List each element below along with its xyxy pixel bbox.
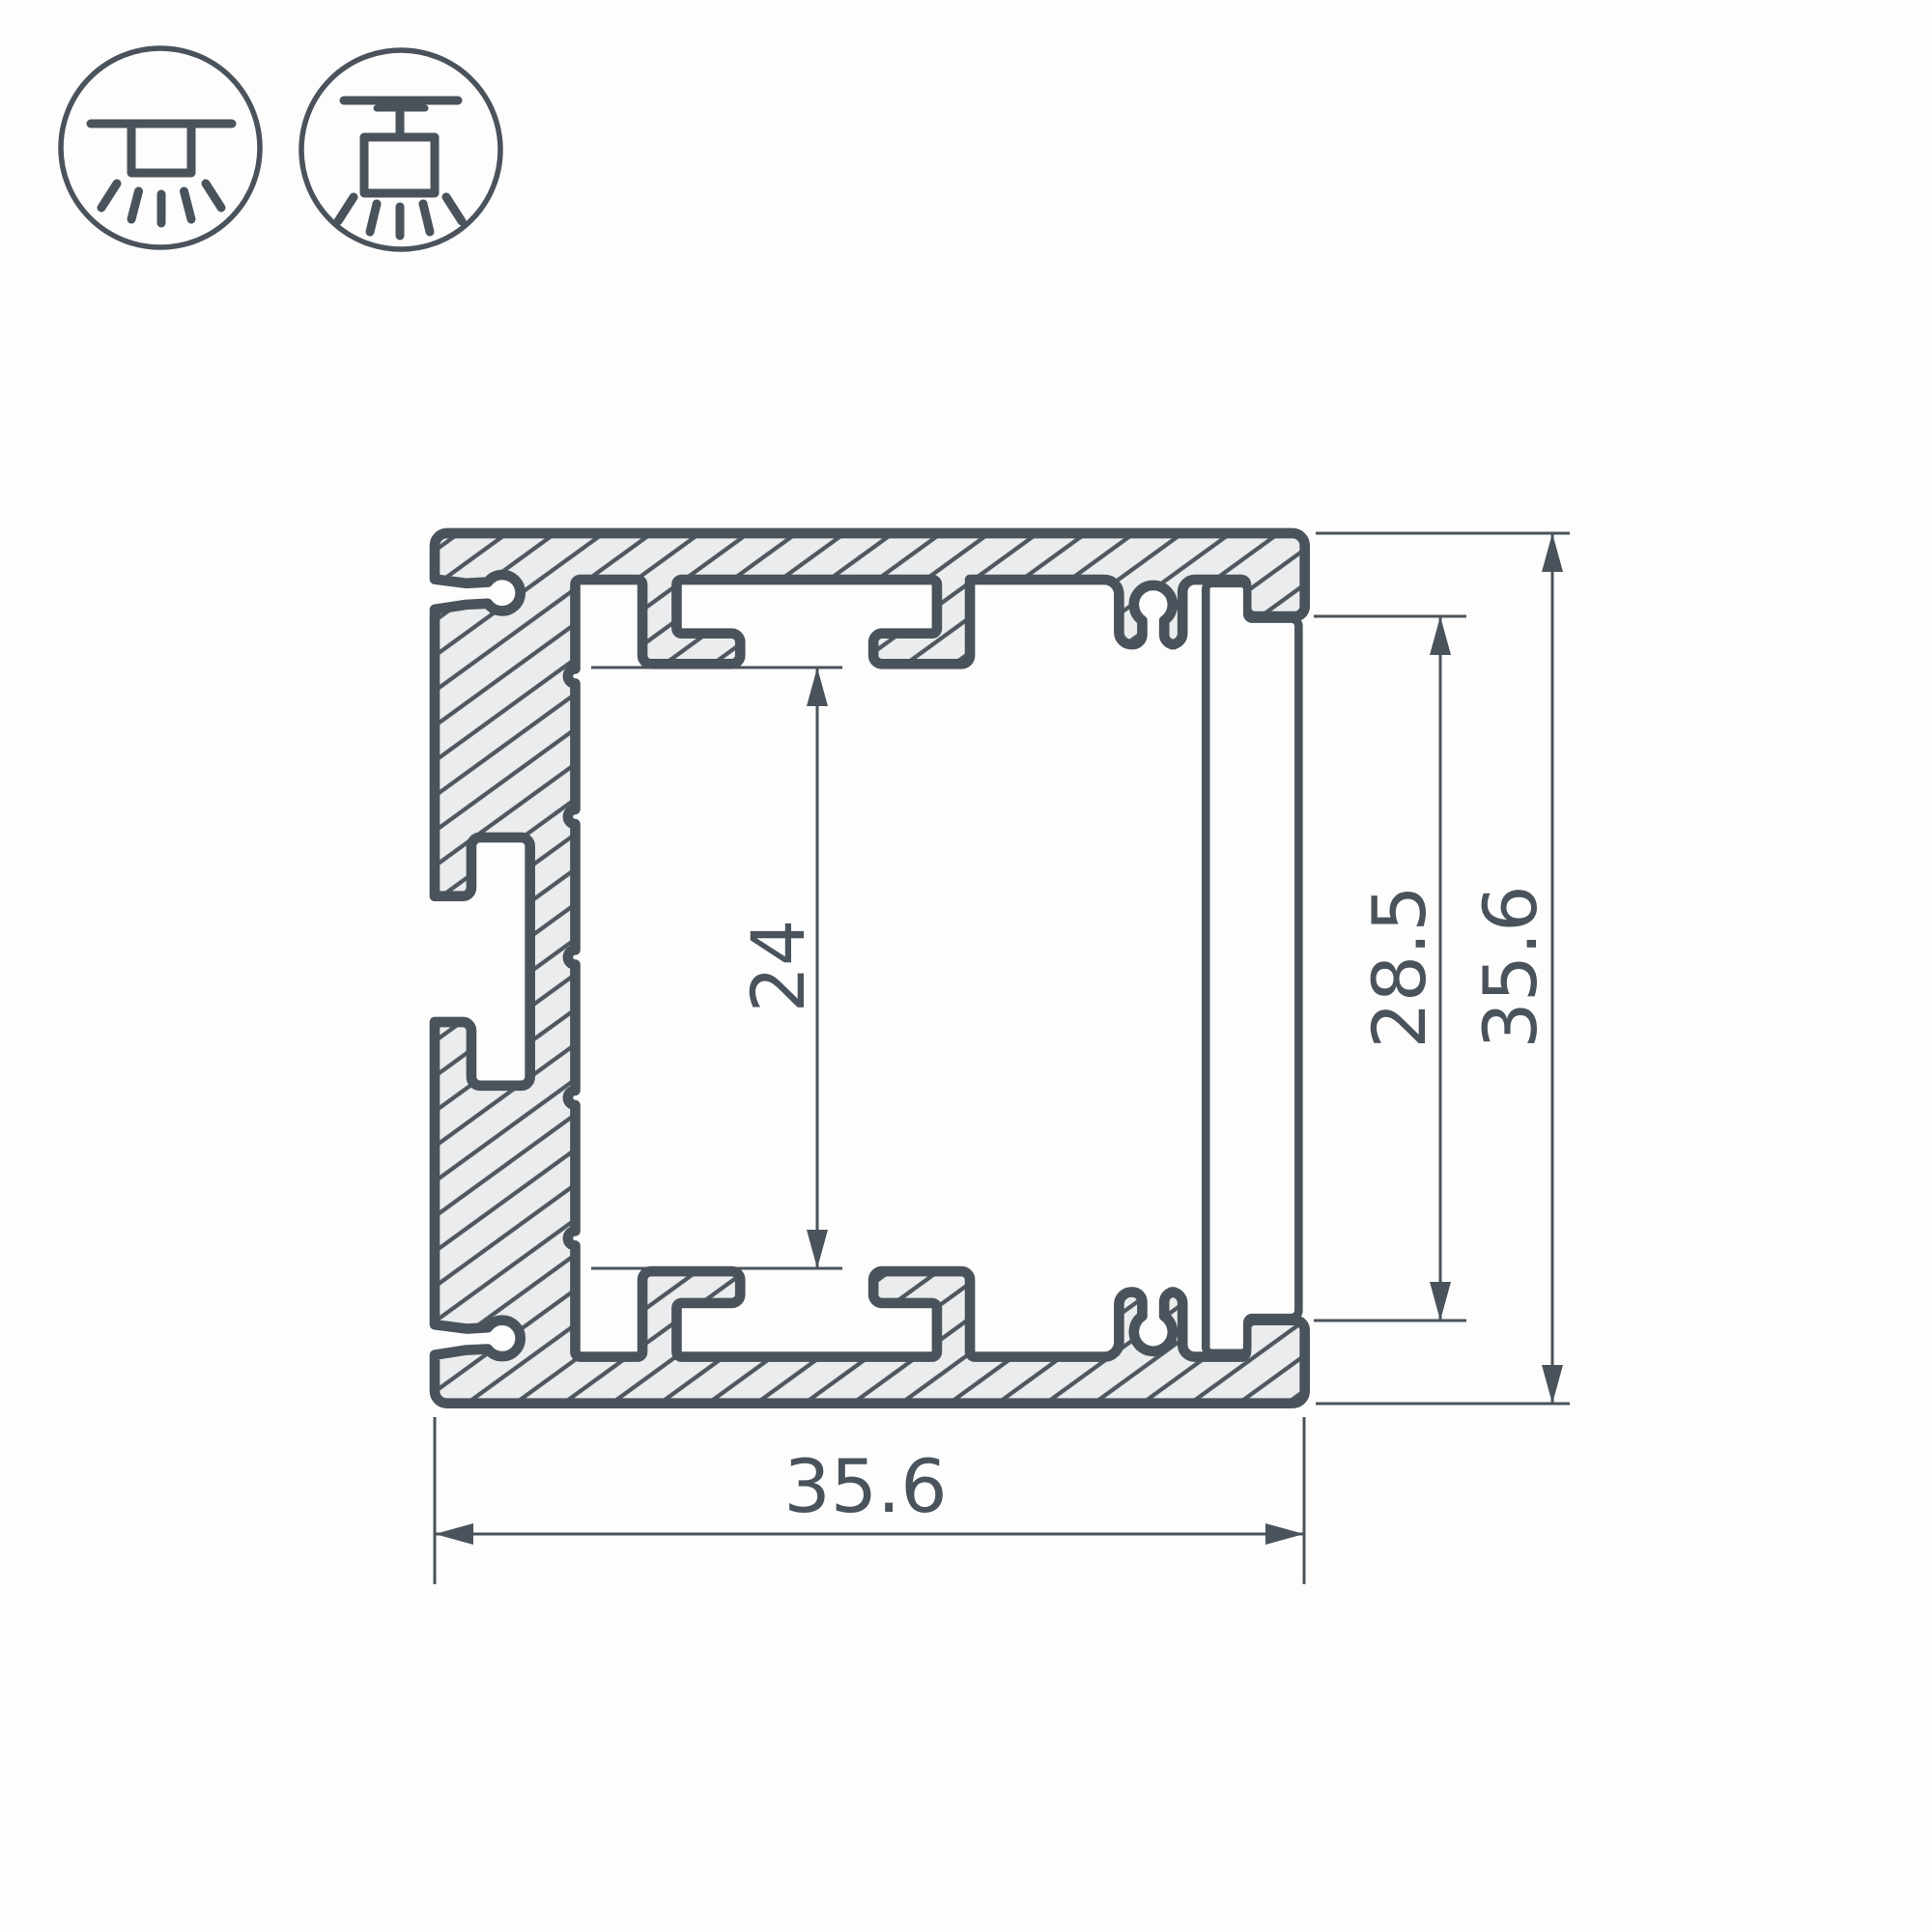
dimension-value: 35.6 <box>1467 885 1553 1048</box>
arrowhead-up <box>1430 616 1451 655</box>
light-ray <box>185 191 192 219</box>
pendant-mount-icon <box>301 50 500 249</box>
arrowhead-left <box>435 1523 473 1545</box>
light-ray <box>101 184 117 208</box>
dimension-overall-height: 35.6 <box>1316 533 1570 1404</box>
dimension-value: 28.5 <box>1356 885 1442 1048</box>
arrowhead-up <box>807 668 828 706</box>
light-ray <box>206 184 221 208</box>
technical-drawing: 24 28.5 35.6 35.6 <box>0 0 1932 1932</box>
profile-body-hatch <box>435 533 1305 1404</box>
fixture-box <box>364 137 435 193</box>
light-ray <box>423 204 430 232</box>
light-ray <box>446 197 462 221</box>
drawing-canvas: 24 28.5 35.6 35.6 <box>0 0 1932 1932</box>
light-ray <box>131 191 139 219</box>
dimension-value: 35.6 <box>783 1443 947 1529</box>
arrowhead-down <box>807 1230 828 1268</box>
dimension-inner-height: 24 <box>591 668 842 1268</box>
dimension-value: 24 <box>735 920 821 1013</box>
surface-mount-icon <box>61 48 260 247</box>
light-ray <box>338 197 354 221</box>
profile-cross-section <box>435 533 1305 1404</box>
light-ray <box>370 204 377 232</box>
arrowhead-down <box>1430 1282 1451 1321</box>
dimension-overall-width: 35.6 <box>435 1417 1304 1584</box>
arrowhead-up <box>1542 533 1563 572</box>
arrowhead-right <box>1265 1523 1304 1545</box>
dimension-opening-height: 28.5 <box>1314 616 1466 1321</box>
fixture-box <box>131 124 191 173</box>
arrowhead-down <box>1542 1365 1563 1404</box>
diffuser-plate <box>1206 583 1298 1353</box>
